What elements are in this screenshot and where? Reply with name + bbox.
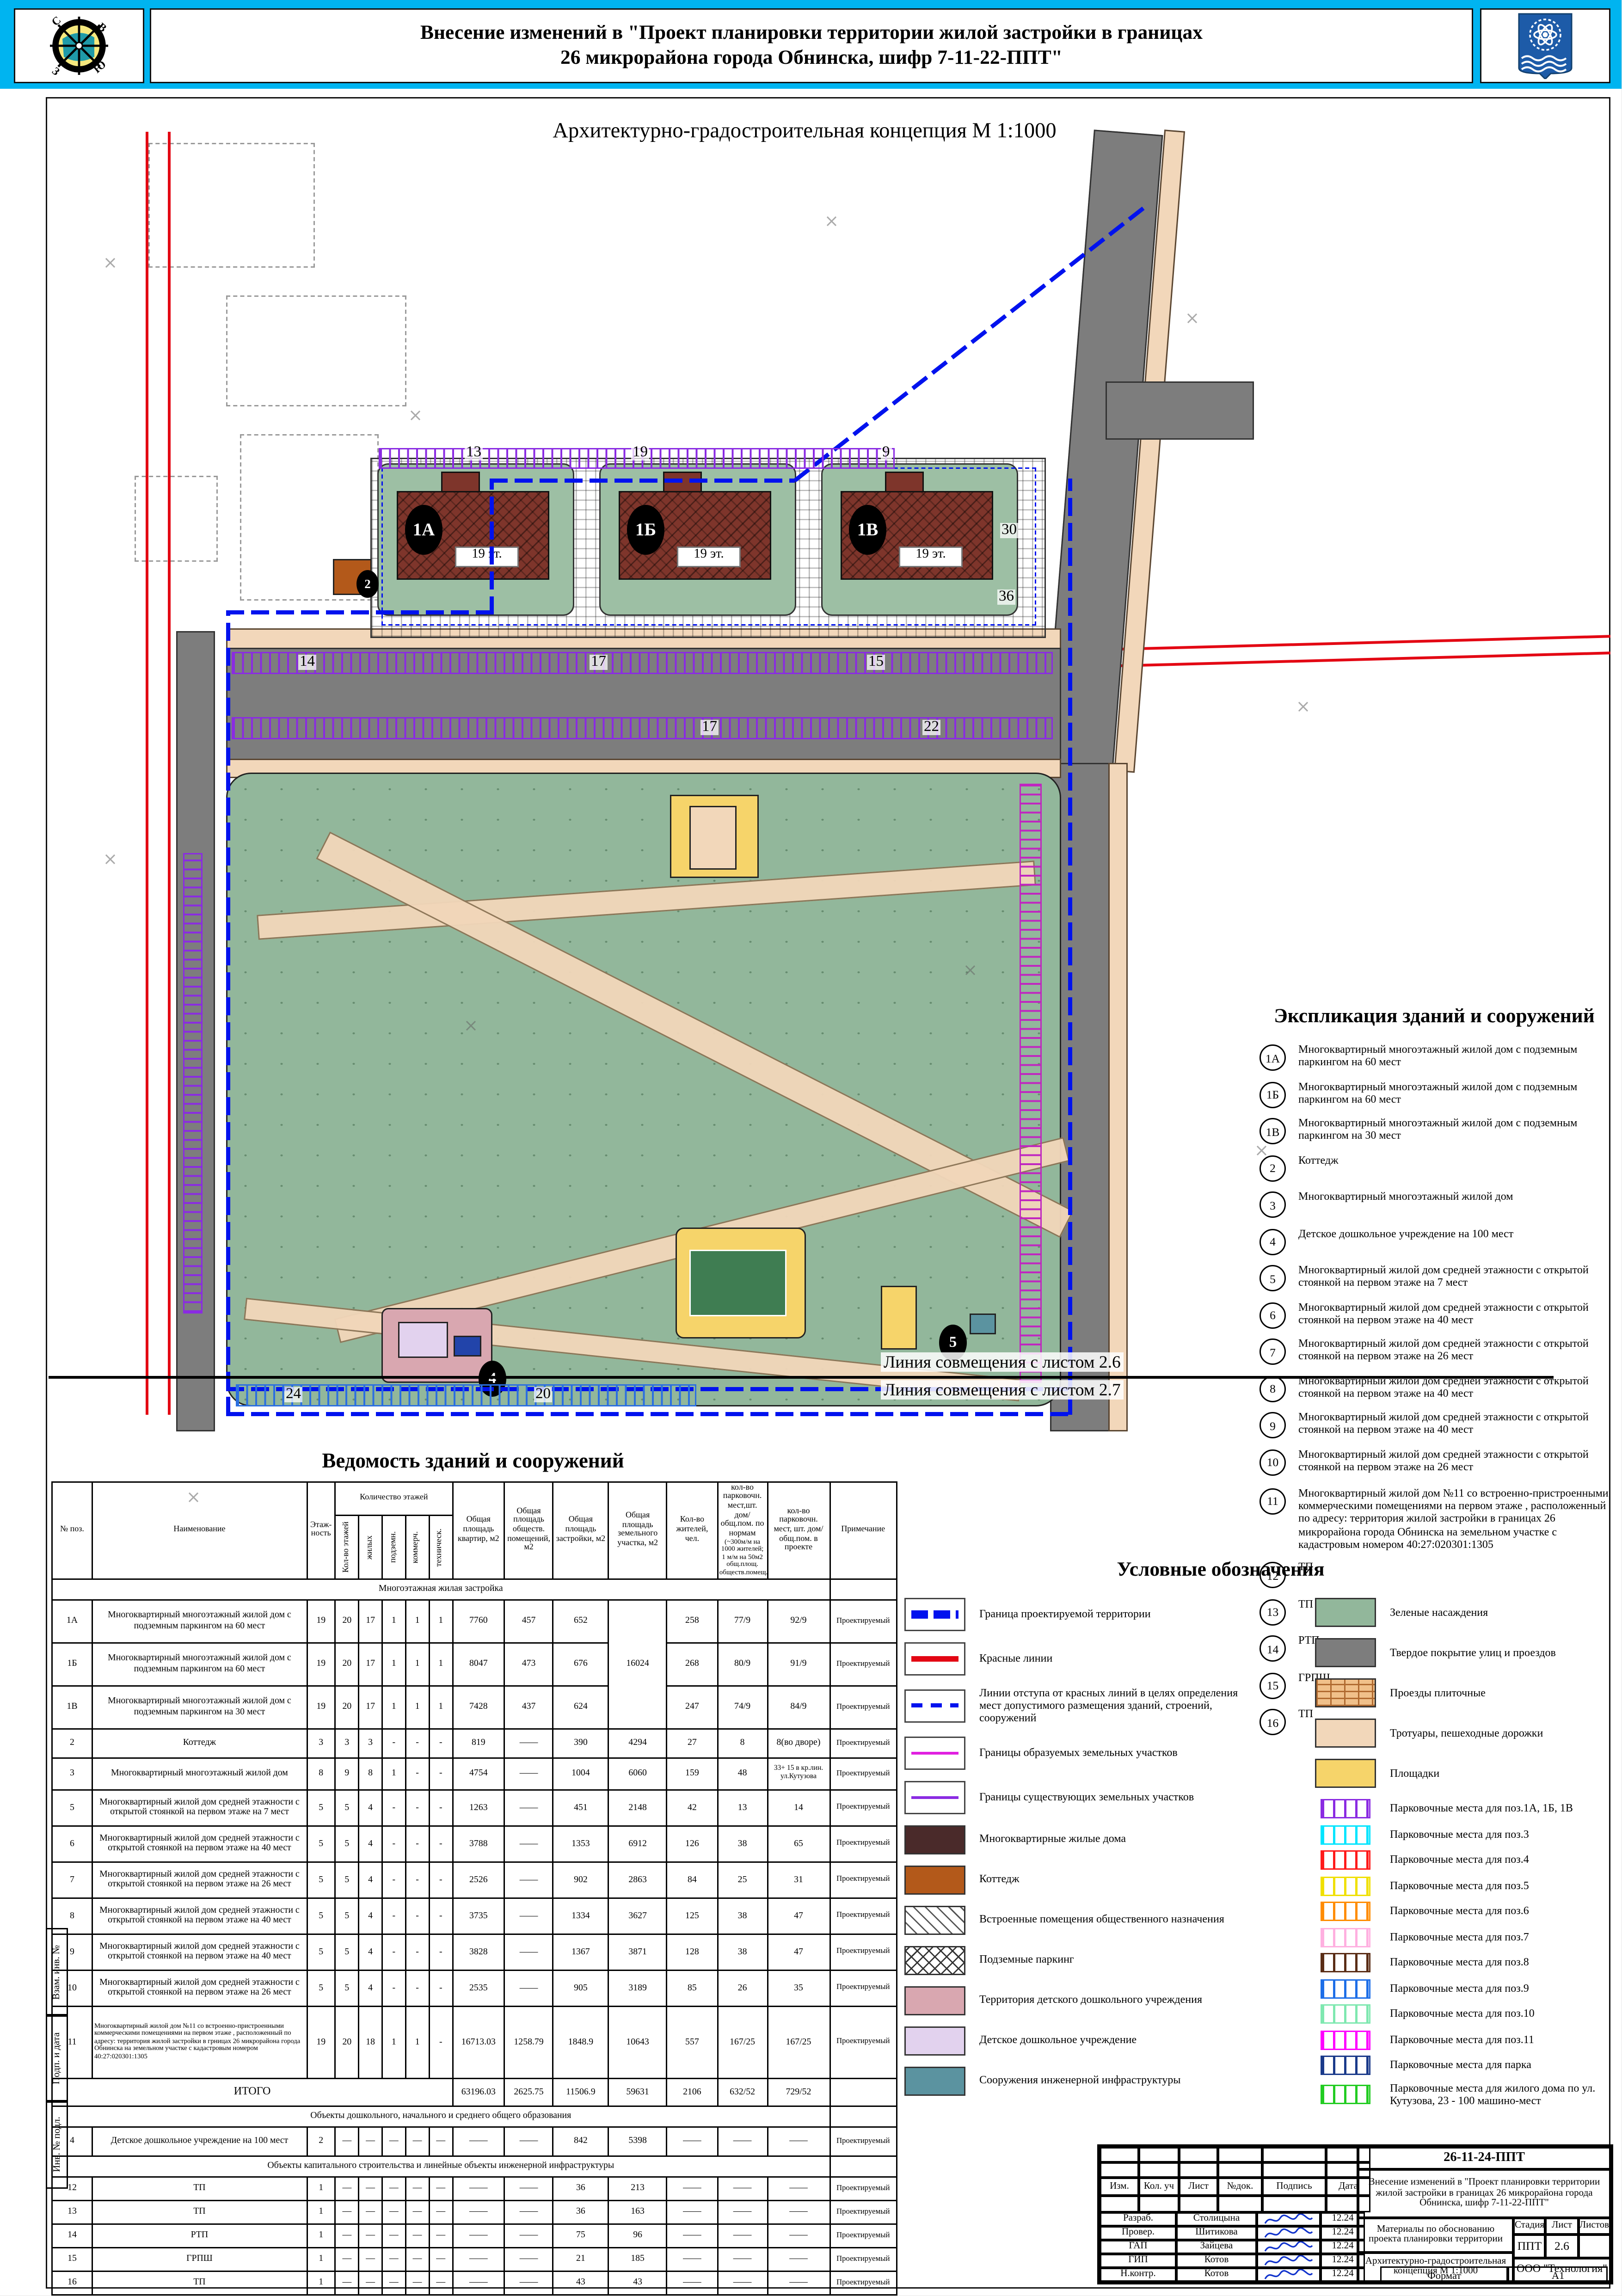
legend-item-label: Проезды плиточные <box>1390 1687 1486 1700</box>
table-cell: — <box>405 2127 429 2156</box>
stamp-cell: Лист <box>1179 2178 1218 2196</box>
table-cell: Проектируемый <box>829 1826 897 1862</box>
table-cell: 16024 <box>608 1600 667 1729</box>
table-cell: 20 <box>335 2006 359 2078</box>
explication-item-text: Многоквартирный жилой дом средней этажно… <box>1298 1374 1609 1402</box>
stamp-signature-row: Разраб.Столицына12.24 <box>1100 2212 1357 2226</box>
table-cell: 163 <box>608 2200 667 2224</box>
table-header-cell: подземн. <box>382 1515 405 1579</box>
table-cell: - <box>405 1790 429 1826</box>
table-cell: 16713.03 <box>453 2006 504 2078</box>
table-cell: 1 <box>307 2177 335 2200</box>
city-emblem-box <box>1480 8 1610 83</box>
red-line <box>168 132 170 1415</box>
table-cell: 1 <box>382 1600 405 1643</box>
explication-item-number: 9 <box>1260 1412 1286 1438</box>
table-cell: —— <box>504 1970 553 2006</box>
table-cell: —— <box>768 2247 829 2271</box>
parking-count-label: 15 <box>867 655 885 670</box>
stamp-person-name: Зайцева <box>1176 2240 1257 2254</box>
stamp-right-grid: 26-11-24-ППТВнесение изменений в "Проект… <box>1357 2147 1610 2282</box>
explication-item-number: 11 <box>1260 1488 1286 1514</box>
explication-item-number: 1А <box>1260 1044 1286 1071</box>
table-cell: 63196.03 <box>453 2078 504 2106</box>
survey-cross-icon <box>825 215 838 227</box>
stamp-signature-row: ГИПКотов12.24 <box>1100 2254 1357 2268</box>
explication-item-text: Многоквартирный многоэтажный жилой дом с… <box>1298 1080 1609 1108</box>
table-header-cell: Общая площадь обществ. помещений, м2 <box>504 1482 553 1579</box>
table-cell: Многоквартирный жилой дом средней этажно… <box>92 1790 307 1826</box>
table-cell: 1 <box>405 1686 429 1729</box>
explication-item: 3Многоквартирный многоэтажный жилой дом <box>1260 1190 1609 1218</box>
legend-left-column: Граница проектируемой территорииКрасные … <box>904 1598 1240 2106</box>
legend-line <box>911 1796 958 1799</box>
legend-item: Границы образуемых земельных участков <box>904 1736 1240 1769</box>
project-boundary <box>226 1412 1072 1417</box>
explication-item: 9Многоквартирный жилой дом средней этажн… <box>1260 1411 1609 1438</box>
table-cell <box>829 2156 897 2177</box>
table-cell: 676 <box>553 1643 608 1686</box>
table-cell: 437 <box>504 1686 553 1729</box>
table-cell: 1Б <box>52 1643 92 1686</box>
table-cell: —— <box>504 1862 553 1898</box>
table-cell: —— <box>504 2200 553 2224</box>
stamp-person-name: Столицына <box>1176 2212 1257 2226</box>
table-cell: 729/52 <box>768 2078 829 2106</box>
stamp-role: ГИП <box>1100 2254 1176 2268</box>
legend-item: Парковочные места для поз.1А, 1Б, 1В <box>1315 1799 1609 1818</box>
stamp-cell <box>1100 2196 1139 2212</box>
legend-swatch <box>904 1780 965 1814</box>
parking-count-label: 24 <box>284 1387 302 1402</box>
setback-line <box>381 467 1036 626</box>
table-cell: 3788 <box>453 1826 504 1862</box>
legend-item: Парковочные места для поз.8 <box>1315 1953 1609 1972</box>
table-cell: 3 <box>307 1729 335 1758</box>
legend-item-label: Парковочные места для поз.4 <box>1390 1854 1529 1866</box>
legend-item: Парковочные места для поз.10 <box>1315 2004 1609 2024</box>
margin-label: Инв. № подл. <box>51 2117 62 2172</box>
obninsk-emblem-icon <box>1518 12 1573 79</box>
table-row: 9Многоквартирный жилой дом средней этажн… <box>52 1934 897 1970</box>
stamp-cell <box>1139 2196 1179 2212</box>
table-subheader-rotated: Кол-во этажей <box>342 1522 351 1572</box>
legend-swatch <box>904 1689 965 1722</box>
table-cell: 624 <box>553 1686 608 1729</box>
table-cell: Детское дошкольное учреждение на 100 мес… <box>92 2127 307 2156</box>
table-cell: 1263 <box>453 1790 504 1826</box>
stamp-cell <box>1218 2196 1262 2212</box>
table-cell: 75 <box>553 2224 608 2247</box>
table-cell: 80/9 <box>717 1643 768 1686</box>
explication-item-number: 10 <box>1260 1449 1286 1475</box>
stamp-signature-row: Провер.Шитикова12.24 <box>1100 2226 1357 2240</box>
table-cell: — <box>405 2224 429 2247</box>
table-cell: — <box>382 2224 405 2247</box>
table-cell: - <box>429 1898 453 1934</box>
stamp-person-name: Котов <box>1176 2254 1257 2268</box>
table-cell: 21 <box>553 2247 608 2271</box>
parking-strip <box>183 853 203 1314</box>
table-cell: 5 <box>335 1862 359 1898</box>
legend-item: Зеленые насаждения <box>1315 1598 1609 1627</box>
table-header-cell: Общая площадь застройки, м2 <box>553 1482 608 1579</box>
explication-item-number: 4 <box>1260 1228 1286 1255</box>
table-header-cell: Общая площадь земельного участка, м2 <box>608 1482 667 1579</box>
table-cell: 19 <box>307 1686 335 1729</box>
table-cell: 8 <box>307 1758 335 1790</box>
legend-item: Территория детского дошкольного учрежден… <box>904 1986 1240 2015</box>
stage-header-cell: Лист <box>1546 2218 1578 2235</box>
legend-item: Граница проектируемой территории <box>904 1598 1240 1631</box>
table-cell: Многоквартирный многоэтажный жилой дом с… <box>92 1600 307 1643</box>
table-cell: 457 <box>504 1600 553 1643</box>
table-cell: 31 <box>768 1862 829 1898</box>
table-cell: - <box>429 1758 453 1790</box>
parking-strip <box>236 1384 696 1406</box>
table-cell: 42 <box>667 1790 718 1826</box>
vedomost-table: № поз.НаименованиеЭтаж- ностьКоличество … <box>51 1481 897 2295</box>
table-cell: —— <box>504 1790 553 1826</box>
table-cell: 74/9 <box>717 1686 768 1729</box>
legend-swatch <box>1321 2030 1370 2050</box>
legend-swatch <box>904 2026 965 2055</box>
table-header-cell: техническ. <box>429 1515 453 1579</box>
legend-swatch <box>1315 1598 1376 1627</box>
stage-value-cell <box>1578 2235 1610 2258</box>
table-cell: Многоквартирный многоэтажный жилой дом <box>92 1758 307 1790</box>
table-cell: 2863 <box>608 1862 667 1898</box>
legend-swatch <box>904 2066 965 2095</box>
parking-count-label: 30 <box>1000 523 1018 538</box>
table-cell: ТП <box>92 2177 307 2200</box>
legend-swatch <box>1321 2056 1370 2075</box>
table-header-cell: Кол-во жителей, чел. <box>667 1482 718 1579</box>
legend-line <box>911 1657 958 1662</box>
legend-swatch <box>904 1736 965 1769</box>
table-cell: 17 <box>359 1643 382 1686</box>
table-cell: - <box>429 1970 453 2006</box>
table-cell: Многоквартирный жилой дом №11 со встроен… <box>92 2006 307 2078</box>
legend-item: Парковочные места для поз.11 <box>1315 2030 1609 2050</box>
explication-item-text: Многоквартирный многоэтажный жилой дом <box>1298 1190 1513 1218</box>
explication-item: 7Многоквартирный жилой дом средней этажн… <box>1260 1337 1609 1365</box>
table-cell: 85 <box>667 1970 718 2006</box>
legend-item: Сооружения инженерной инфраструктуры <box>904 2066 1240 2095</box>
legend-swatch <box>1321 1979 1370 1998</box>
legend-item-label: Парковочные места для поз.5 <box>1390 1879 1529 1892</box>
table-row: 13ТП1—————————36163——————Проектируемый <box>52 2200 897 2224</box>
table-cell: 20 <box>335 1600 359 1643</box>
table-cell: 2535 <box>453 1970 504 2006</box>
table-header-cell: кол-во парковочн. мест, шт. дом/ общ.пом… <box>768 1482 829 1579</box>
parking-count-label: 9 <box>881 445 891 460</box>
table-cell: —— <box>504 2224 553 2247</box>
sheet-title-line2: 26 микрорайона города Обнинска, шифр 7-1… <box>560 46 1063 71</box>
table-cell: — <box>335 2271 359 2295</box>
legend-swatch <box>1321 2004 1370 2024</box>
table-cell: — <box>429 2224 453 2247</box>
legend-swatch <box>904 1642 965 1676</box>
explication-item-number: 7 <box>1260 1338 1286 1365</box>
table-cell: 5 <box>307 1826 335 1862</box>
legend-item: Площадки <box>1315 1759 1609 1788</box>
table-cell: 4 <box>359 1934 382 1970</box>
table-cell: —— <box>717 2271 768 2295</box>
explication-item-text: ТП <box>1298 1597 1313 1625</box>
table-cell: 3871 <box>608 1934 667 1970</box>
parking-count-label: 17 <box>700 720 719 735</box>
table-cell: —— <box>504 2247 553 2271</box>
table-cell: 77/9 <box>717 1600 768 1643</box>
table-header-cell: Этаж- ность <box>307 1482 335 1579</box>
table-cell: Многоквартирный жилой дом средней этажно… <box>92 1970 307 2006</box>
table-cell: — <box>382 2247 405 2271</box>
table-cell: 36 <box>553 2177 608 2200</box>
legend-swatch <box>1321 2084 1370 2104</box>
table-cell: 1353 <box>553 1826 608 1862</box>
table-cell: 5 <box>307 1970 335 2006</box>
table-cell: Проектируемый <box>829 2006 897 2078</box>
existing-building-outline <box>226 295 406 406</box>
stamp-row: Изм.Кол. учЛист№док.ПодписьДата <box>1100 2178 1357 2196</box>
table-cell: 33+ 15 в кр.лин. ул.Кутузова <box>768 1758 829 1790</box>
parking-count-label: 13 <box>465 445 483 460</box>
explication-item-text: Многоквартирный жилой дом средней этажно… <box>1298 1264 1609 1291</box>
explication-item-number: 1В <box>1260 1118 1286 1144</box>
table-cell: - <box>405 1898 429 1934</box>
table-cell: 1 <box>382 1643 405 1686</box>
stamp-cell <box>1218 2162 1262 2178</box>
table-cell: —— <box>667 2224 718 2247</box>
table-cell: - <box>429 1826 453 1862</box>
legend-item-label: Площадки <box>1390 1767 1439 1780</box>
table-cell: 1 <box>307 2200 335 2224</box>
signature-scribble <box>1257 2212 1321 2226</box>
table-cell <box>829 1579 897 1600</box>
table-cell: 1В <box>52 1686 92 1729</box>
table-row: 11Многоквартирный жилой дом №11 со встро… <box>52 2006 897 2078</box>
table-cell: 1 <box>307 2224 335 2247</box>
legend-item: Твердое покрытие улиц и проездов <box>1315 1638 1609 1667</box>
explication-item-number: 13 <box>1260 1599 1286 1625</box>
sheet-title: Внесение изменений в "Проект планировки … <box>150 8 1473 83</box>
legend-item-label: Сооружения инженерной инфраструктуры <box>979 2074 1180 2087</box>
legend-item-label: Парковочные места для поз.3 <box>1390 1828 1529 1841</box>
table-cell: 902 <box>553 1862 608 1898</box>
table-cell: 4 <box>359 1826 382 1862</box>
table-cell: 1 <box>429 1600 453 1643</box>
table-cell: 65 <box>768 1826 829 1862</box>
table-cell: Проектируемый <box>829 1934 897 1970</box>
explication-item: 10Многоквартирный жилой дом средней этаж… <box>1260 1448 1609 1475</box>
explication-item: 1БМногоквартирный многоэтажный жилой дом… <box>1260 1080 1609 1108</box>
table-row: 14РТП1—————————7596——————Проектируемый <box>52 2224 897 2247</box>
table-cell: 84/9 <box>768 1686 829 1729</box>
table-cell: 7760 <box>453 1600 504 1643</box>
table-cell: Многоквартирный многоэтажный жилой дом с… <box>92 1643 307 1686</box>
table-cell: - <box>382 1826 405 1862</box>
table-cell: 1 <box>405 1643 429 1686</box>
table-cell: —— <box>768 2200 829 2224</box>
table-cell: —— <box>667 2127 718 2156</box>
table-header-cell: коммерч. <box>405 1515 429 1579</box>
table-cell: 652 <box>553 1600 608 1643</box>
legend-item-label: Многоквартирные жилые дома <box>979 1833 1126 1846</box>
table-row: 3Многоквартирный многоэтажный жилой дом8… <box>52 1758 897 1790</box>
legend-item-label: Парковочные места для поз.10 <box>1390 2007 1535 2020</box>
svg-text:З: З <box>49 65 62 78</box>
table-cell: 1004 <box>553 1758 608 1790</box>
table-cell: 247 <box>667 1686 718 1729</box>
table-cell: - <box>429 1934 453 1970</box>
table-cell: 84 <box>667 1862 718 1898</box>
table-header-cell: кол-во парковочн. мест,шт. дом/ общ.пом.… <box>717 1482 768 1579</box>
legend-item-label: Парковочные места для поз.7 <box>1390 1931 1529 1944</box>
table-cell: — <box>335 2177 359 2200</box>
table-cell: —— <box>504 1898 553 1934</box>
table-cell: — <box>359 2127 382 2156</box>
table-subheader-rotated: коммерч. <box>412 1531 422 1563</box>
table-cell: 43 <box>608 2271 667 2295</box>
table-cell: 5 <box>307 1934 335 1970</box>
table-cell: Коттедж <box>92 1729 307 1758</box>
legend-item: Границы существующих земельных участков <box>904 1780 1240 1814</box>
table-cell: 167/25 <box>768 2006 829 2078</box>
table-cell: 19 <box>307 2006 335 2078</box>
legend-swatch <box>1315 1678 1376 1707</box>
table-cell: —— <box>504 1826 553 1862</box>
sport-court <box>689 1250 786 1316</box>
table-cell: 59631 <box>608 2078 667 2106</box>
table-cell: —— <box>667 2200 718 2224</box>
table-cell: ТП <box>92 2271 307 2295</box>
sidewalk <box>1108 763 1128 1431</box>
legend-item-label: Границы существующих земельных участков <box>979 1791 1194 1804</box>
table-cell: 4 <box>359 1862 382 1898</box>
legend-item-label: Парковочные места для жилого дома по ул.… <box>1390 2081 1609 2107</box>
table-row: 5Многоквартирный жилой дом средней этажн… <box>52 1790 897 1826</box>
stamp-cell: Кол. уч <box>1139 2178 1179 2196</box>
parking-count-label: 22 <box>922 720 940 735</box>
legend-swatch <box>1321 1799 1370 1818</box>
table-cell: Проектируемый <box>829 1862 897 1898</box>
parking-strip <box>1020 784 1042 1383</box>
margin-label-cell: Инв. № подл. <box>46 2100 68 2189</box>
stamp-object-title: Внесение изменений в "Проект планировки … <box>1358 2169 1610 2218</box>
table-cell: 36 <box>553 2200 608 2224</box>
stamp-role: Н.контр. <box>1100 2268 1176 2282</box>
table-total-row: ИТОГО63196.032625.7511506.9596312106632/… <box>52 2078 897 2106</box>
table-cell: —— <box>768 2271 829 2295</box>
table-cell: 4 <box>359 1970 382 2006</box>
table-cell: 3 <box>52 1758 92 1790</box>
table-cell: 3828 <box>453 1934 504 1970</box>
legend-swatch <box>904 1865 965 1894</box>
table-cell: 557 <box>667 2006 718 2078</box>
table-cell: 6060 <box>608 1758 667 1790</box>
legend-item-label: Встроенные помещения общественного назна… <box>979 1913 1224 1926</box>
margin-label: Подп. и дата <box>51 2032 62 2084</box>
survey-cross-icon <box>964 964 977 976</box>
table-cell: 8(во дворе) <box>768 1729 829 1758</box>
table-cell: 3627 <box>608 1898 667 1934</box>
table-cell: 91/9 <box>768 1643 829 1686</box>
legend-item-label: Красные линии <box>979 1652 1052 1665</box>
table-cell: 125 <box>667 1898 718 1934</box>
table-cell: 1 <box>429 1686 453 1729</box>
table-cell: 3 <box>335 1729 359 1758</box>
legend-swatch <box>1321 1928 1370 1947</box>
parking-count-label: 14 <box>298 655 316 670</box>
table-cell: - <box>429 1790 453 1826</box>
table-cell: - <box>382 1862 405 1898</box>
table-cell: 390 <box>553 1729 608 1758</box>
table-cell: Проектируемый <box>829 2127 897 2156</box>
table-cell: 26 <box>717 1970 768 2006</box>
table-cell: 842 <box>553 2127 608 2156</box>
table-section-row: Многоэтажная жилая застройка <box>52 1579 897 1600</box>
table-cell: —— <box>717 2224 768 2247</box>
table-cell: —— <box>717 2200 768 2224</box>
table-cell: Многоэтажная жилая застройка <box>52 1579 830 1600</box>
legend-item: Коттедж <box>904 1865 1240 1894</box>
table-cell: 5 <box>307 1790 335 1826</box>
table-cell: — <box>382 2127 405 2156</box>
table-cell: - <box>429 2006 453 2078</box>
table-cell: 5 <box>335 1790 359 1826</box>
legend-item-label: Граница проектируемой территории <box>979 1608 1151 1621</box>
table-cell: Многоквартирный многоэтажный жилой дом с… <box>92 1686 307 1729</box>
playground <box>881 1286 917 1350</box>
legend-swatch <box>1321 1825 1370 1844</box>
table-cell: - <box>405 1970 429 2006</box>
table-cell: —— <box>504 2177 553 2200</box>
table-cell: 15 <box>52 2247 92 2271</box>
table-cell: 2526 <box>453 1862 504 1898</box>
red-line <box>146 132 148 1415</box>
table-cell: —— <box>453 2247 504 2271</box>
legend-item: Красные линии <box>904 1642 1240 1676</box>
sheet-title-line1: Внесение изменений в "Проект планировки … <box>420 21 1203 46</box>
table-cell: —— <box>768 2224 829 2247</box>
position-marker: 2 <box>356 570 379 598</box>
table-cell: 1258.79 <box>504 2006 553 2078</box>
table-cell: Проектируемый <box>829 1790 897 1826</box>
existing-building-outline <box>148 143 315 268</box>
explication-title: Экспликация зданий и сооружений <box>1260 1006 1609 1029</box>
table-cell: 451 <box>553 1790 608 1826</box>
legend-swatch <box>904 1598 965 1631</box>
table-cell: 1 <box>405 1600 429 1643</box>
table-cell: —— <box>453 2224 504 2247</box>
table-cell: —— <box>717 2247 768 2271</box>
stamp-doc1: Материалы по обоснованию проекта планиро… <box>1358 2218 1513 2253</box>
compass-rose-icon: С В З Ю <box>47 14 111 78</box>
legend-item-label: Парковочные места для поз.1А, 1Б, 1В <box>1390 1802 1573 1815</box>
legend-item-label: Парковочные места для парка <box>1390 2059 1531 2072</box>
table-cell: 3189 <box>608 1970 667 2006</box>
table-cell: —— <box>504 1758 553 1790</box>
table-cell: —— <box>667 2271 718 2295</box>
table-cell: Проектируемый <box>829 1643 897 1686</box>
stamp-role: ГАП <box>1100 2240 1176 2254</box>
stamp-row <box>1100 2147 1357 2162</box>
table-cell: 9 <box>335 1758 359 1790</box>
table-cell: 8 <box>717 1729 768 1758</box>
table-cell: —— <box>667 2177 718 2200</box>
table-cell: —— <box>768 2177 829 2200</box>
